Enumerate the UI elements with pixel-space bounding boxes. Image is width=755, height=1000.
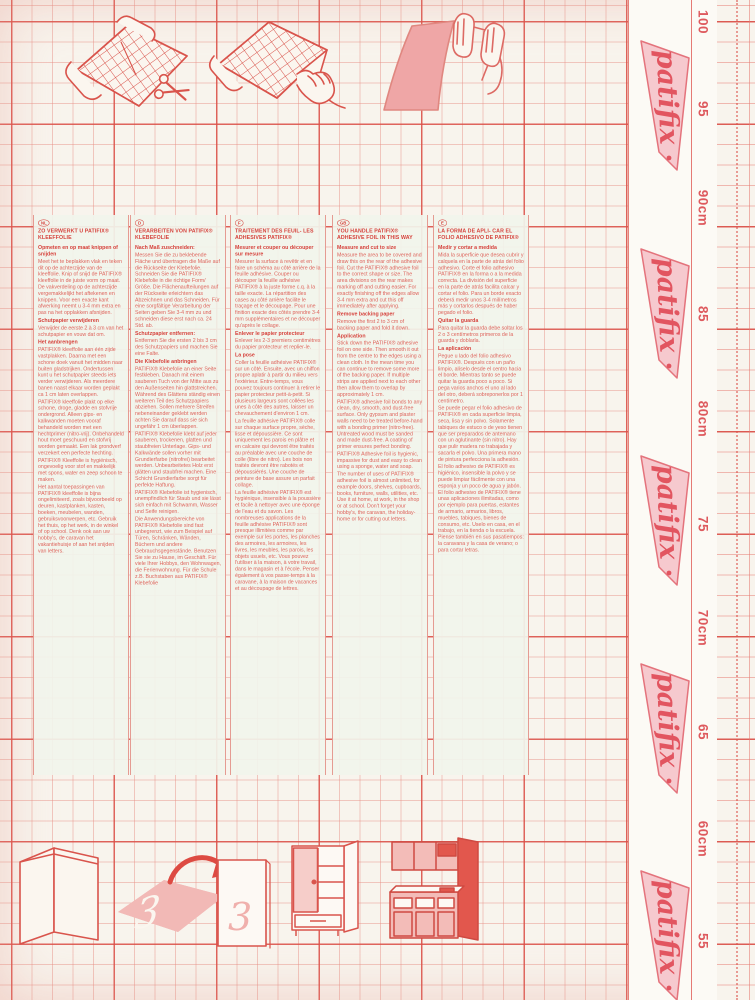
column-text: Nach Maß zuschneiden:Messen Sie die zu b… bbox=[135, 245, 221, 587]
illustration-wardrobe-icon bbox=[288, 840, 362, 946]
section-heading: Application bbox=[337, 333, 423, 339]
section-heading: Remove backing paper bbox=[337, 311, 423, 317]
ruler-label-text: 65 bbox=[696, 724, 711, 740]
language-code-badge: NL bbox=[38, 220, 50, 227]
paragraph: PATIFIX® kleeffolie aan één zijde vastpl… bbox=[38, 347, 124, 398]
paragraph: PATIFIX® kleeffolie plakt op elke schone… bbox=[38, 399, 124, 457]
paragraph: PATIFIX® Klebefolie klebt auf jeder saub… bbox=[135, 431, 221, 489]
section-heading: Schutzpapier entfernen: bbox=[135, 330, 221, 336]
instruction-column: NL ZO VERWERKT U PATIFIX® KLEEFFOLIE Opm… bbox=[33, 215, 129, 775]
instruction-column: F TRAITEMENT DES FEUIL- LES ADHESIVES PA… bbox=[230, 215, 326, 775]
ruler-label-text: 55 bbox=[696, 933, 711, 949]
patifix-logo: patifix bbox=[631, 38, 697, 176]
paragraph: El folio adhesivo de PATIFIX® es higiéni… bbox=[438, 464, 524, 554]
paragraph: Mesurer la surface à revêtir et en faire… bbox=[235, 258, 321, 328]
scissors-icon bbox=[154, 74, 191, 107]
tick-dotted-line bbox=[736, 0, 738, 1000]
hand-icon bbox=[453, 14, 474, 57]
paragraph: The number of uses of PATIFIX® adhesive … bbox=[337, 471, 423, 522]
paragraph: PATIFIX® Adhesive foil is hygienic, impa… bbox=[337, 451, 423, 470]
instruction-column: D VERARBEITEN VON PATIFIX® KLEBEFOLIE Na… bbox=[130, 215, 226, 775]
logo-text: patifix bbox=[650, 672, 684, 769]
section-heading: Medir y cortar a medida bbox=[438, 245, 524, 251]
illustration-smooth-foil-icon bbox=[358, 6, 520, 114]
paragraph: Het aantal toepassingen van PATIFIX® kle… bbox=[38, 484, 124, 554]
registered-mark-icon bbox=[667, 571, 672, 576]
ruler-label-text: 80cm bbox=[696, 401, 711, 438]
paragraph: Se puede pegar el folio adhesivo de PATI… bbox=[438, 405, 524, 463]
illustration-kitchen-unit-icon bbox=[386, 836, 486, 948]
column-title: ZO VERWERKT U PATIFIX® KLEEFFOLIE bbox=[38, 228, 124, 241]
ruler-tick-zone bbox=[717, 0, 755, 1000]
section-heading: Die Klebefolie anbringen bbox=[135, 358, 221, 364]
column-text: Measure and cut to sizeMeasure the area … bbox=[337, 245, 423, 523]
ruler-label-text: 95 bbox=[696, 101, 711, 117]
logo-text: patifix bbox=[650, 49, 684, 146]
section-heading: Opmeten en op maat knippen of snijden bbox=[38, 245, 124, 258]
door-panel: 3 bbox=[218, 860, 270, 948]
illustration-panel-corner-icon bbox=[8, 842, 110, 946]
logo-text: patifix bbox=[650, 257, 684, 354]
patifix-logo: patifix bbox=[631, 246, 697, 384]
registered-mark-icon bbox=[667, 364, 672, 369]
ruler-line bbox=[691, 0, 692, 1000]
column-title: TRAITEMENT DES FEUIL- LES ADHESIVES PATI… bbox=[235, 228, 321, 241]
paragraph: Stick down the PATIFIX® adhesive foil on… bbox=[337, 340, 423, 398]
section-heading: Measure and cut to size bbox=[337, 245, 423, 251]
tick-fine-line bbox=[749, 0, 750, 1000]
section-heading: Enlever le papier protecteur bbox=[235, 330, 321, 336]
paragraph: PATIFIX® Klebefolie an einer Seite festk… bbox=[135, 366, 221, 430]
illustration-peel-backing-icon bbox=[205, 12, 347, 112]
section-heading: Quitar la guarda bbox=[438, 317, 524, 323]
paragraph: Entfernen Sie die ersten 2 bis 3 cm des … bbox=[135, 338, 221, 357]
paragraph: Measure the area to be covered and draw … bbox=[337, 252, 423, 310]
ruler-label-text: 90cm bbox=[696, 190, 711, 227]
paragraph: Verwijder de eerste 2 à 3 cm van het sch… bbox=[38, 325, 124, 338]
patifix-logo: patifix bbox=[631, 661, 697, 799]
ruler-label-text: 100 bbox=[696, 10, 711, 34]
ruler-label-text: 85 bbox=[696, 306, 711, 322]
hand-icon bbox=[481, 23, 504, 94]
section-heading: Nach Maß zuschneiden: bbox=[135, 245, 221, 251]
paragraph: Enlever les 2-3 premiers centimètres du … bbox=[235, 338, 321, 351]
column-title: YOU HANDLE PATIFIX® ADHESIVE FOIL IN THI… bbox=[337, 228, 423, 241]
paragraph: Mida la superficie que desea cubrir y ca… bbox=[438, 252, 524, 316]
ruler-label-text: 75 bbox=[696, 516, 711, 532]
language-code-badge: E bbox=[438, 220, 447, 227]
paragraph: Die Anwendungsbereiche von PATIFIX® Kleb… bbox=[135, 516, 221, 586]
patifix-logo: patifix bbox=[631, 453, 697, 591]
cutout-numeral: 3 bbox=[133, 886, 163, 940]
registered-mark-icon bbox=[667, 156, 672, 161]
registered-mark-icon bbox=[667, 986, 672, 991]
paragraph: La feuille adhésive PATIFIX® colle sur c… bbox=[235, 418, 321, 488]
paragraph: Remove the first 2 to 3 cm of backing pa… bbox=[337, 318, 423, 331]
instruction-column: E LA FORMA DE APLI- CAR EL FOLIO ADHESIV… bbox=[433, 215, 529, 775]
instruction-column: GB YOU HANDLE PATIFIX® ADHESIVE FOIL IN … bbox=[332, 215, 428, 775]
paragraph: PATIFIX® Klebefolie ist hygienisch, unem… bbox=[135, 489, 221, 515]
hand-icon bbox=[297, 71, 345, 109]
logo-text: patifix bbox=[650, 464, 684, 561]
illustration-numeral-door-icon: 3 3 bbox=[112, 838, 274, 950]
paragraph: Pegue u lado del folio adhesivo PATIFIX®… bbox=[438, 353, 524, 404]
column-text: Mesurer et couper ou découper sur mesure… bbox=[235, 245, 321, 592]
paragraph: Meet het te beplakken vlak en teken dit … bbox=[38, 258, 124, 316]
column-text: Opmeten en op maat knippen of snijdenMee… bbox=[38, 245, 124, 555]
registered-mark-icon bbox=[667, 779, 672, 784]
column-text: Medir y cortar a medidaMida la superfici… bbox=[438, 245, 524, 554]
paragraph: Para quitar la guarda debe soltar los 2 … bbox=[438, 325, 524, 344]
paragraph: La feuille adhésive PATIFIX® est hygiéni… bbox=[235, 489, 321, 591]
section-heading: La aplicación bbox=[438, 346, 524, 352]
language-code-badge: GB bbox=[337, 220, 349, 227]
language-code-badge: F bbox=[235, 220, 244, 227]
backing-paper-sheet: NL ZO VERWERKT U PATIFIX® KLEEFFOLIE Opm… bbox=[0, 0, 755, 1000]
paragraph: PATIFIX® Kleeffolie is hygiënisch, ongev… bbox=[38, 457, 124, 483]
section-heading: Schutpapier verwijderen bbox=[38, 317, 124, 323]
column-title: LA FORMA DE APLI- CAR EL FOLIO ADHESIVO … bbox=[438, 228, 524, 241]
paragraph: Messen Sie die zu beklebende Fläche und … bbox=[135, 252, 221, 329]
ruler-label-text: 70cm bbox=[696, 610, 711, 647]
paragraph: PATIFIX® adhesive foil bonds to any clea… bbox=[337, 399, 423, 450]
applied-numeral: 3 bbox=[228, 895, 252, 939]
section-heading: La pose bbox=[235, 352, 321, 358]
column-title: VERARBEITEN VON PATIFIX® KLEBEFOLIE bbox=[135, 228, 221, 241]
illustration-unroll-cut-icon bbox=[55, 10, 207, 112]
section-heading: Het aanbrengen bbox=[38, 339, 124, 345]
sink-icon bbox=[440, 888, 454, 892]
language-code-badge: D bbox=[135, 220, 144, 227]
paragraph: Coller la feuille adhésive PATIFIX® sur … bbox=[235, 359, 321, 417]
foil-sheet bbox=[384, 21, 454, 110]
patifix-logo: patifix bbox=[631, 868, 697, 1000]
section-heading: Mesurer et couper ou découper sur mesure bbox=[235, 245, 321, 258]
ruler-label-text: 60cm bbox=[696, 821, 711, 858]
logo-text: patifix bbox=[650, 879, 684, 976]
